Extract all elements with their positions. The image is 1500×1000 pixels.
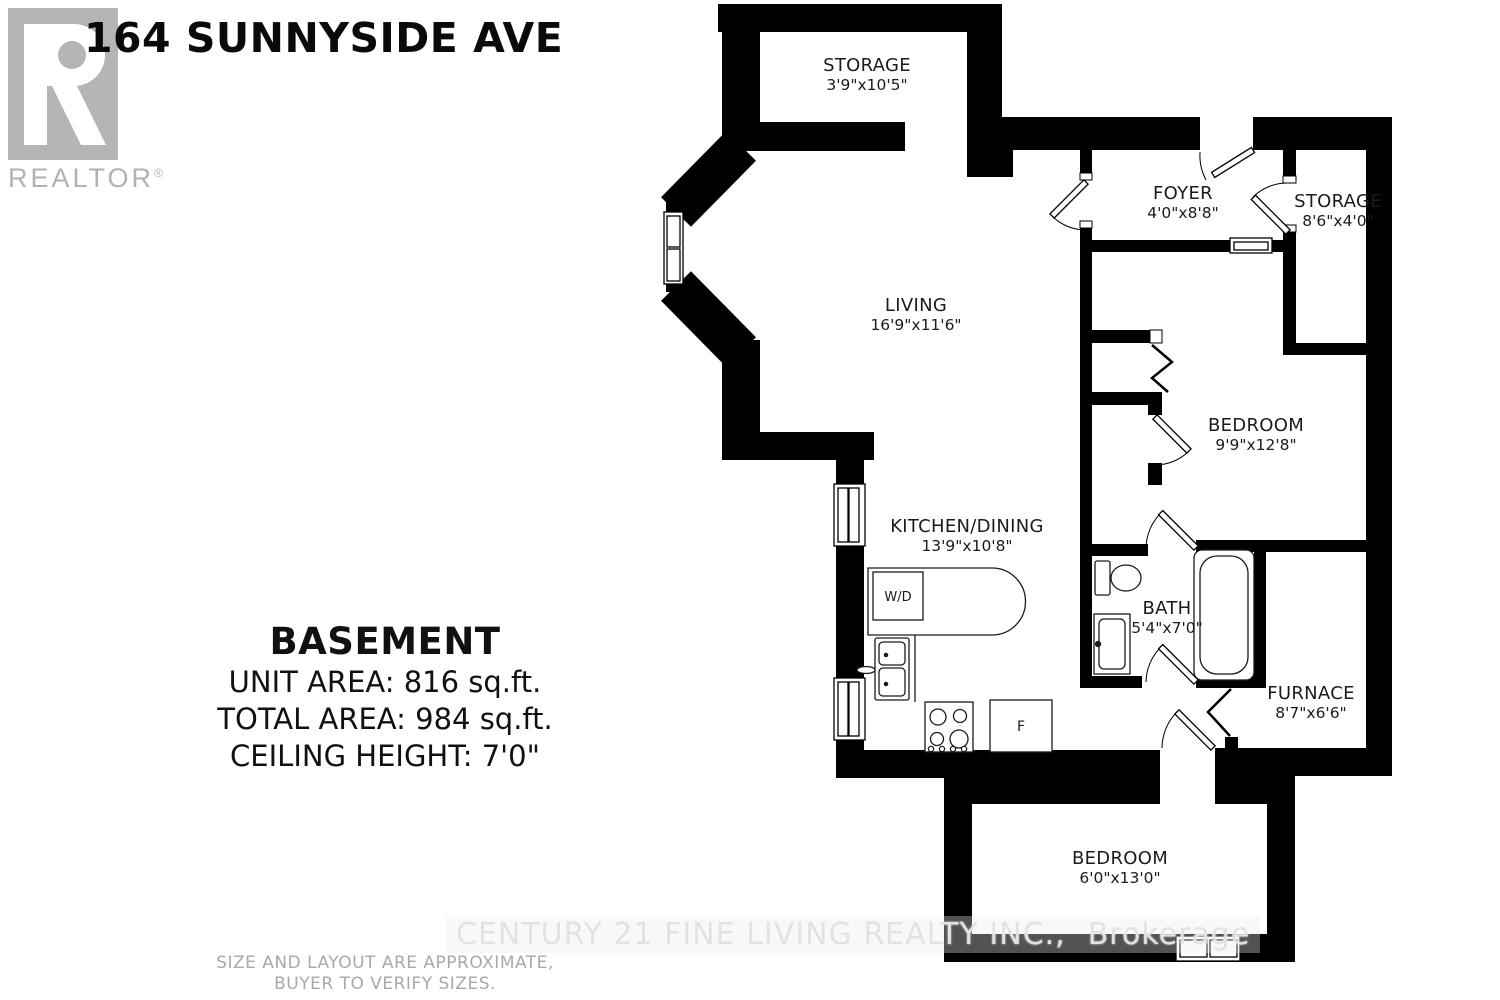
bath-north-door-icon bbox=[1146, 511, 1198, 551]
room-label-bedroom-lower: BEDROOM 6'0"x13'0" bbox=[1072, 849, 1168, 887]
brokerage-name: CENTURY 21 FINE LIVING REALTY INC., bbox=[456, 917, 1066, 952]
entry-door-icon bbox=[1200, 147, 1255, 180]
kitchen-window-lower-icon bbox=[834, 678, 865, 740]
room-dims: 4'0"x8'8" bbox=[1147, 204, 1218, 222]
bedroom-door-icon bbox=[1153, 415, 1191, 465]
fixtures-layer bbox=[857, 550, 1254, 752]
page-title: 164 SUNNYSIDE AVE bbox=[84, 14, 563, 62]
room-label-furnace: FURNACE 8'7"x6'6" bbox=[1267, 684, 1355, 722]
room-label-storage-top: STORAGE 3'9"x10'5" bbox=[823, 56, 911, 94]
bath-south-door-icon bbox=[1146, 645, 1198, 685]
bedroom-lower-door-icon bbox=[1162, 710, 1215, 750]
room-name: STORAGE bbox=[823, 56, 911, 76]
disclaimer-note: SIZE AND LAYOUT ARE APPROXIMATE, BUYER T… bbox=[216, 953, 554, 995]
realtor-wordmark-text: REALTOR bbox=[8, 163, 154, 193]
room-dims: 16'9"x11'6" bbox=[870, 316, 961, 334]
bathroom-vanity-icon bbox=[1094, 614, 1130, 674]
kitchen-window-upper-icon bbox=[834, 484, 865, 546]
disclaimer-line-2: BUYER TO VERIFY SIZES. bbox=[216, 974, 554, 995]
room-name: BATH bbox=[1131, 599, 1202, 619]
registered-mark: ® bbox=[154, 166, 163, 180]
floor-plan-page: REALTOR® 164 SUNNYSIDE AVE bbox=[0, 0, 1500, 1000]
room-name: FOYER bbox=[1147, 184, 1218, 204]
room-label-kitchen: KITCHEN/DINING 13'9"x10'8" bbox=[890, 517, 1044, 555]
room-dims: 9'9"x12'8" bbox=[1208, 436, 1304, 454]
room-dims: 13'9"x10'8" bbox=[890, 537, 1044, 555]
closet-bifold-door-icon bbox=[1152, 345, 1172, 392]
room-dims: 8'7"x6'6" bbox=[1267, 704, 1355, 722]
brokerage-suffix: Brokerage bbox=[1088, 917, 1251, 952]
stove-icon bbox=[925, 702, 973, 752]
room-dims: 3'9"x10'5" bbox=[823, 76, 911, 94]
total-area-line: TOTAL AREA: 984 sq.ft. bbox=[217, 701, 552, 738]
room-dims: 8'6"x4'0" bbox=[1294, 212, 1382, 230]
room-label-storage-right: STORAGE 8'6"x4'0" bbox=[1294, 192, 1382, 230]
disclaimer-line-1: SIZE AND LAYOUT ARE APPROXIMATE, bbox=[216, 953, 554, 974]
fridge-label: F bbox=[1017, 719, 1025, 735]
room-name: STORAGE bbox=[1294, 192, 1382, 212]
room-dims: 6'0"x13'0" bbox=[1072, 869, 1168, 887]
room-name: LIVING bbox=[870, 296, 961, 316]
room-label-bath: BATH 5'4"x7'0" bbox=[1131, 599, 1202, 637]
brokerage-watermark: CENTURY 21 FINE LIVING REALTY INC.,Broke… bbox=[446, 916, 1260, 953]
room-name: KITCHEN/DINING bbox=[890, 517, 1044, 537]
furnace-bifold-door-icon bbox=[1208, 689, 1231, 736]
walls-layer bbox=[666, 4, 1392, 962]
unit-area-line: UNIT AREA: 816 sq.ft. bbox=[217, 664, 552, 701]
room-name: FURNACE bbox=[1267, 684, 1355, 704]
room-label-foyer: FOYER 4'0"x8'8" bbox=[1147, 184, 1218, 222]
room-name: BEDROOM bbox=[1208, 416, 1304, 436]
room-name: BEDROOM bbox=[1072, 849, 1168, 869]
bay-window-icon bbox=[664, 212, 683, 284]
foyer-window-icon bbox=[1230, 238, 1272, 253]
washer-dryer-label: W/D bbox=[884, 590, 911, 605]
room-dims: 5'4"x7'0" bbox=[1131, 619, 1202, 637]
toilet-icon bbox=[1095, 561, 1141, 595]
ceiling-height-line: CEILING HEIGHT: 7'0" bbox=[217, 738, 552, 775]
realtor-wordmark: REALTOR® bbox=[8, 163, 163, 194]
summary-title: BASEMENT bbox=[217, 620, 552, 664]
floor-plan-svg: W/D F bbox=[0, 0, 1500, 1000]
room-label-living: LIVING 16'9"x11'6" bbox=[870, 296, 961, 334]
unit-summary: BASEMENT UNIT AREA: 816 sq.ft. TOTAL ARE… bbox=[217, 620, 552, 775]
storage-right-door-icon bbox=[1251, 183, 1290, 234]
room-label-bedroom-main: BEDROOM 9'9"x12'8" bbox=[1208, 416, 1304, 454]
bathtub-icon bbox=[1194, 550, 1254, 680]
